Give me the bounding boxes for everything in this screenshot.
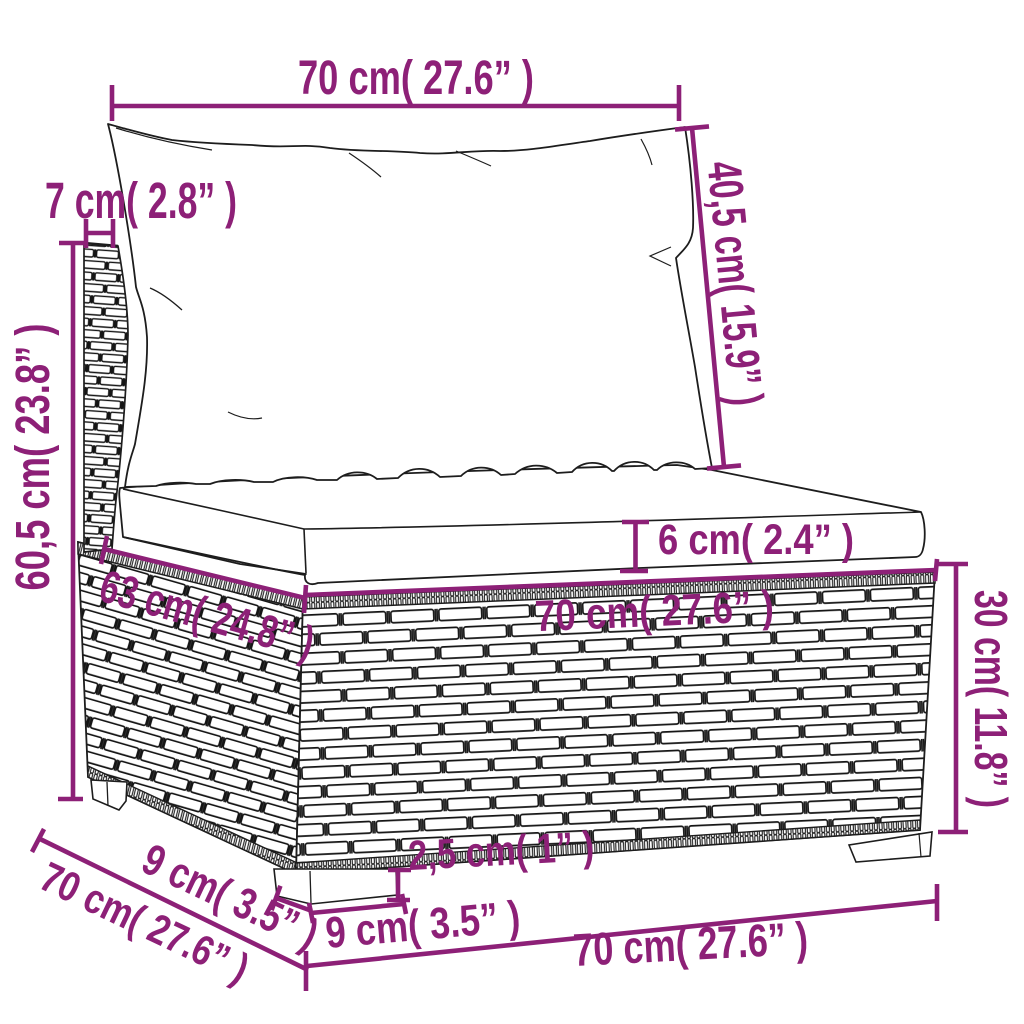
svg-text:2,5 cm( 1” ): 2,5 cm( 1” ): [407, 822, 595, 879]
svg-text:6 cm( 2.4” ): 6 cm( 2.4” ): [658, 516, 854, 564]
svg-text:60,5 cm( 23.8” ): 60,5 cm( 23.8” ): [7, 324, 60, 591]
svg-text:70 cm( 27.6” ): 70 cm( 27.6” ): [534, 582, 775, 641]
svg-text:70 cm( 27.6” ): 70 cm( 27.6” ): [298, 52, 534, 105]
svg-text:30 cm( 11.8” ): 30 cm( 11.8” ): [965, 590, 1017, 808]
svg-text:7 cm( 2.8” ): 7 cm( 2.8” ): [45, 172, 237, 229]
